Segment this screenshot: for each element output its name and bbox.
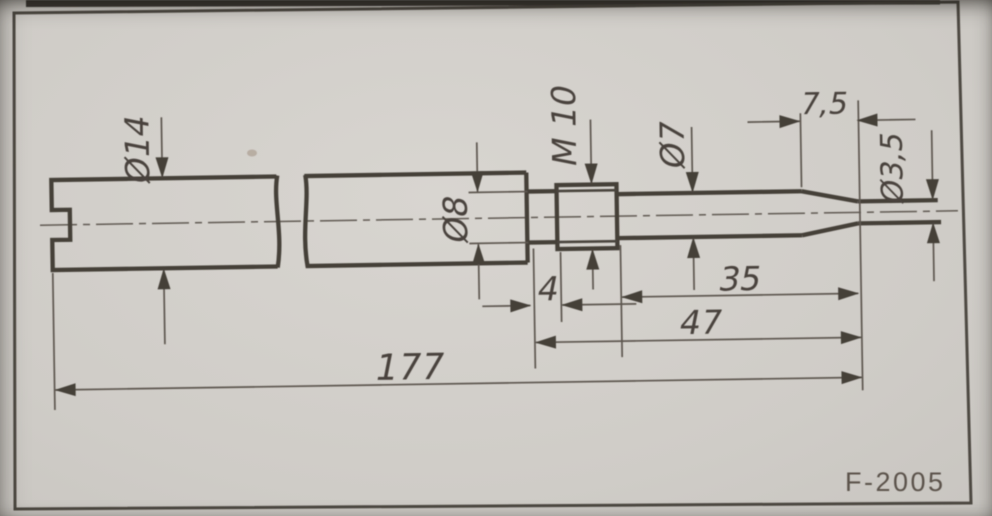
arrow [926, 179, 939, 200]
label-front-length: 47 [676, 303, 726, 342]
taper-top-edge [802, 190, 858, 202]
ext-thread-start [561, 252, 562, 322]
shaft-drawing: Ø14 Ø8 M 10 Ø7 Ø3,5 7,5 4 35 47 177 [38, 75, 961, 410]
arrow [621, 290, 642, 303]
paper-speck [247, 150, 257, 157]
arrow [686, 172, 699, 193]
dimension-lines [51, 105, 935, 390]
ext-left-end [53, 273, 55, 410]
dimension-arrowheads [50, 113, 942, 397]
arrow [585, 163, 598, 184]
arrow [561, 298, 582, 311]
arrow [510, 299, 531, 312]
shank-top-edge [304, 173, 526, 176]
drawing-canvas: Ø14 Ø8 M 10 Ø7 Ø3,5 7,5 4 35 47 177 F-20… [0, 0, 992, 516]
label-taper-length: 7,5 [797, 87, 852, 122]
label-thread: M 10 [544, 81, 584, 170]
shank-bottom-edge [306, 263, 528, 266]
arrow [687, 237, 700, 258]
label-overall-length: 177 [371, 345, 448, 389]
arrow [55, 383, 76, 396]
ext-shoulder [533, 248, 535, 368]
thread-core-top [557, 190, 617, 191]
label-pilot-diameter: Ø7 [653, 118, 692, 173]
arrow [841, 331, 862, 344]
arrow [841, 371, 862, 384]
pilot-bottom-edge [617, 235, 802, 238]
pilot-top-edge [617, 191, 802, 194]
arrow [471, 171, 484, 192]
label-shank-diameter: Ø14 [118, 111, 158, 187]
extension-lines [50, 100, 863, 410]
taper-bottom-edge [802, 223, 858, 235]
thread-core-bottom [557, 241, 617, 242]
tip-bottom-edge [858, 222, 941, 223]
arrow [927, 222, 940, 243]
label-tip-diameter: Ø3,5 [875, 129, 911, 207]
label-neck-length: 4 [534, 269, 563, 308]
ext-taper-start [800, 113, 801, 187]
scanned-page: Ø14 Ø8 M 10 Ø7 Ø3,5 7,5 4 35 47 177 F-20… [0, 0, 992, 516]
arrow [838, 287, 859, 300]
arrow [586, 248, 599, 269]
label-pilot-length: 35 [716, 259, 766, 298]
figure-code: F-2005 [845, 467, 946, 497]
shoulder-edge [526, 173, 527, 263]
arrow [856, 114, 877, 127]
drawing-frame [14, 2, 971, 509]
label-neck-diameter: Ø8 [436, 192, 475, 247]
centerline [40, 211, 958, 225]
arrow [155, 157, 168, 178]
arrow [535, 336, 556, 349]
arrow [157, 268, 170, 289]
break-line-right [304, 175, 308, 267]
ext-taper-end [858, 100, 863, 390]
ext-neck-bottom [469, 243, 528, 244]
break-line-left [276, 175, 280, 267]
dim-overall-length [56, 377, 862, 390]
